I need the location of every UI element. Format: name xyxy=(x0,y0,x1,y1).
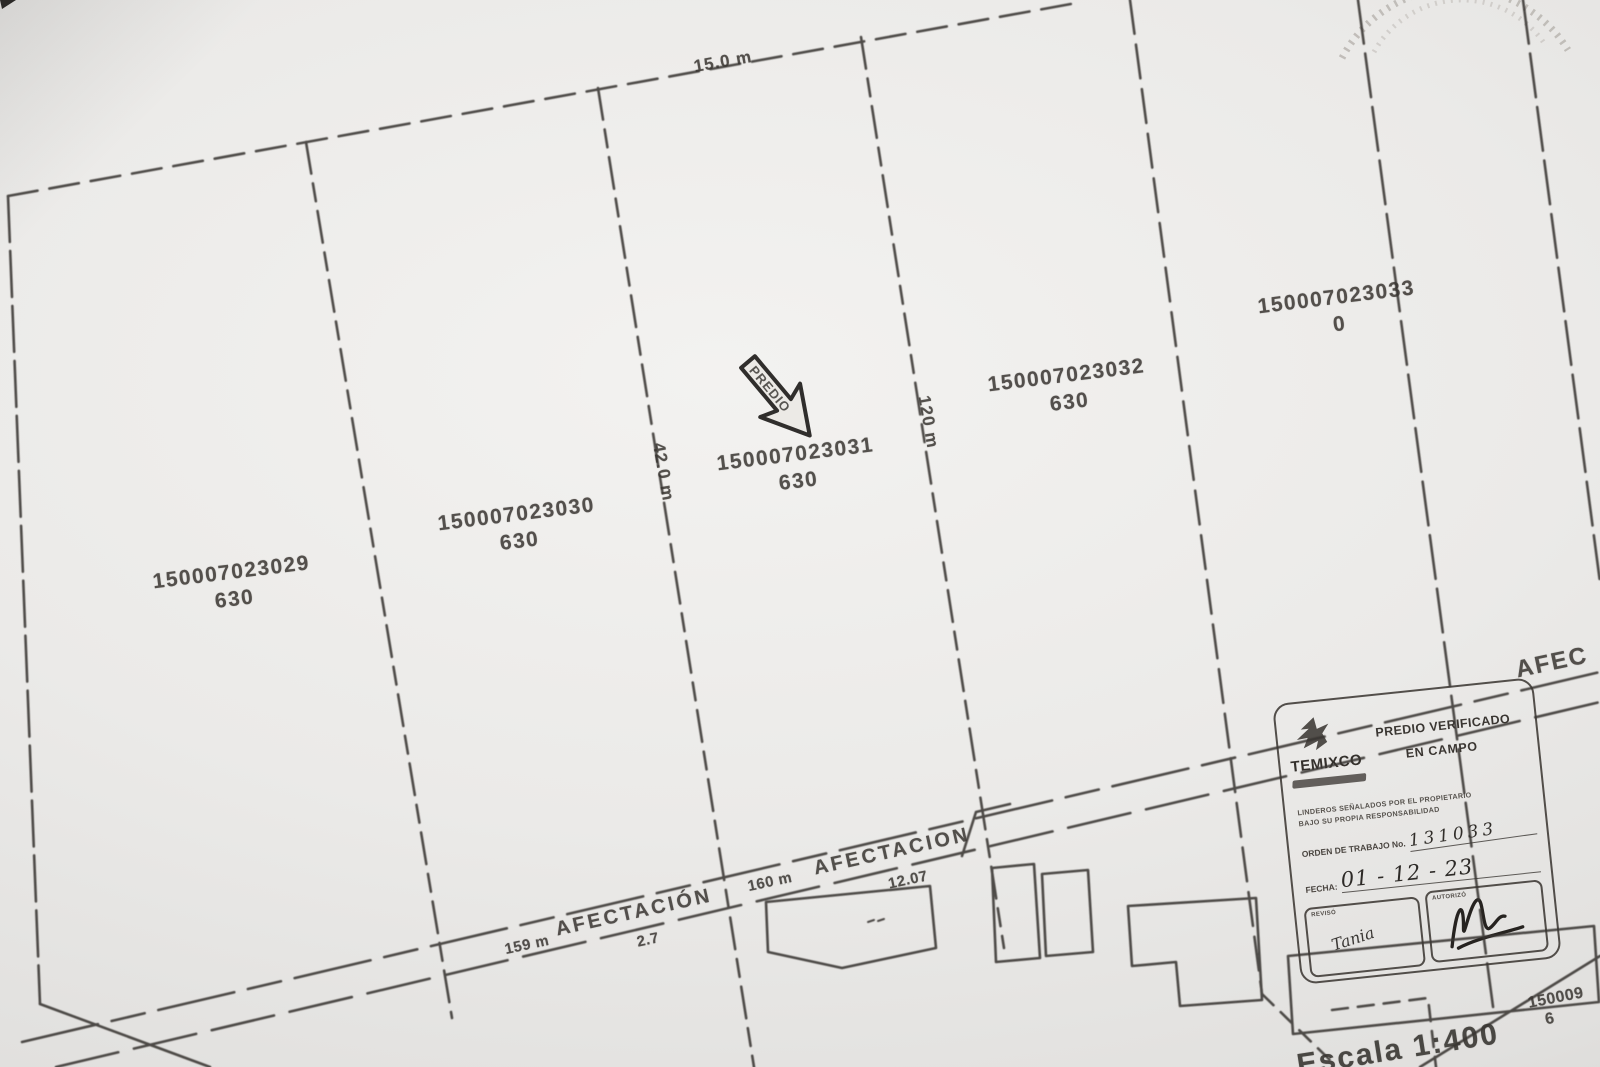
authorized-signature-scribble xyxy=(1429,884,1545,957)
parcel-pointer-arrow-stamp: PREDIO xyxy=(728,345,830,452)
top-dimension-label: 15.0 m xyxy=(692,47,754,77)
reviewed-label: REVISÓ xyxy=(1311,910,1337,919)
bottom-right-parcel-sub: 6 xyxy=(1543,1009,1556,1031)
parcel-label: 150007023029 630 xyxy=(151,549,315,622)
parcel-label: 150007023030 630 xyxy=(436,491,600,564)
authorized-signature-box: AUTORIZÓ xyxy=(1424,879,1549,963)
circular-stamp-arc xyxy=(1342,0,1568,58)
side-dimension-left: 42.0 m xyxy=(648,441,678,503)
predio-verificado-stamp: TEMIXCO PREDIO VERIFICADO EN CAMPO LINDE… xyxy=(1272,677,1562,985)
afectacion-upper-length: 160 m xyxy=(746,869,794,895)
arrow-stamp-text: PREDIO xyxy=(746,363,793,415)
afectacion-upper-label: AFECTACION xyxy=(812,823,973,880)
afectacion-lower-label: AFECTACIÓN xyxy=(554,884,715,941)
reviewed-signature-box: REVISÓ Tania xyxy=(1303,896,1426,978)
bottom-right-parcel-id: 150009 xyxy=(1526,983,1585,1014)
parcel-label: 150007023031 630 xyxy=(715,431,879,504)
scan-corner-artifact xyxy=(0,0,16,9)
right-edge-afectacion-label: AFEC xyxy=(1513,642,1591,685)
scanned-cadastral-map: 150007023029 630 150007023030 630 150007… xyxy=(0,0,1600,1067)
afectacion-lower-length: 159 m xyxy=(503,932,551,958)
scale-label: Escala 1:400 xyxy=(1295,1017,1502,1067)
reviewed-signature: Tania xyxy=(1329,923,1377,955)
side-dimension-right: 120 m xyxy=(914,394,943,450)
afectacion-upper-value: 12.07 xyxy=(887,868,930,893)
parcel-label: 150007023032 630 xyxy=(986,352,1150,425)
afectacion-lower-value: 2.7 xyxy=(635,929,660,950)
parcel-label: 150007023033 0 xyxy=(1256,274,1420,347)
temixco-eagle-icon xyxy=(1290,714,1336,754)
